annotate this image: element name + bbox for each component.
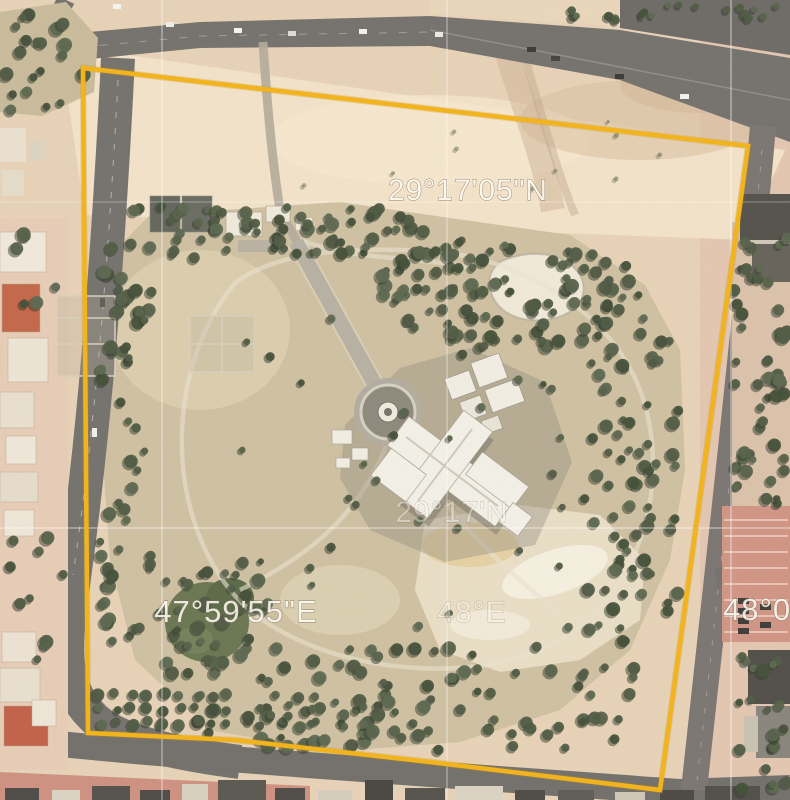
label-lon-48-e: 48°E	[437, 596, 506, 629]
label-lon-47-59-55-e: 47°59'55"E	[154, 594, 317, 629]
label-lat-29-17-n: 29°17'N	[395, 496, 508, 529]
label-lat-29-17-05-n: 29°17'05"N	[388, 174, 548, 207]
satellite-map-view[interactable]: 29°17'05"N 29°17'N 47°59'55"E 48°E 48°0	[0, 0, 790, 800]
label-lon-48-0-clipped: 48°0	[723, 592, 790, 627]
image-grain	[0, 0, 790, 800]
